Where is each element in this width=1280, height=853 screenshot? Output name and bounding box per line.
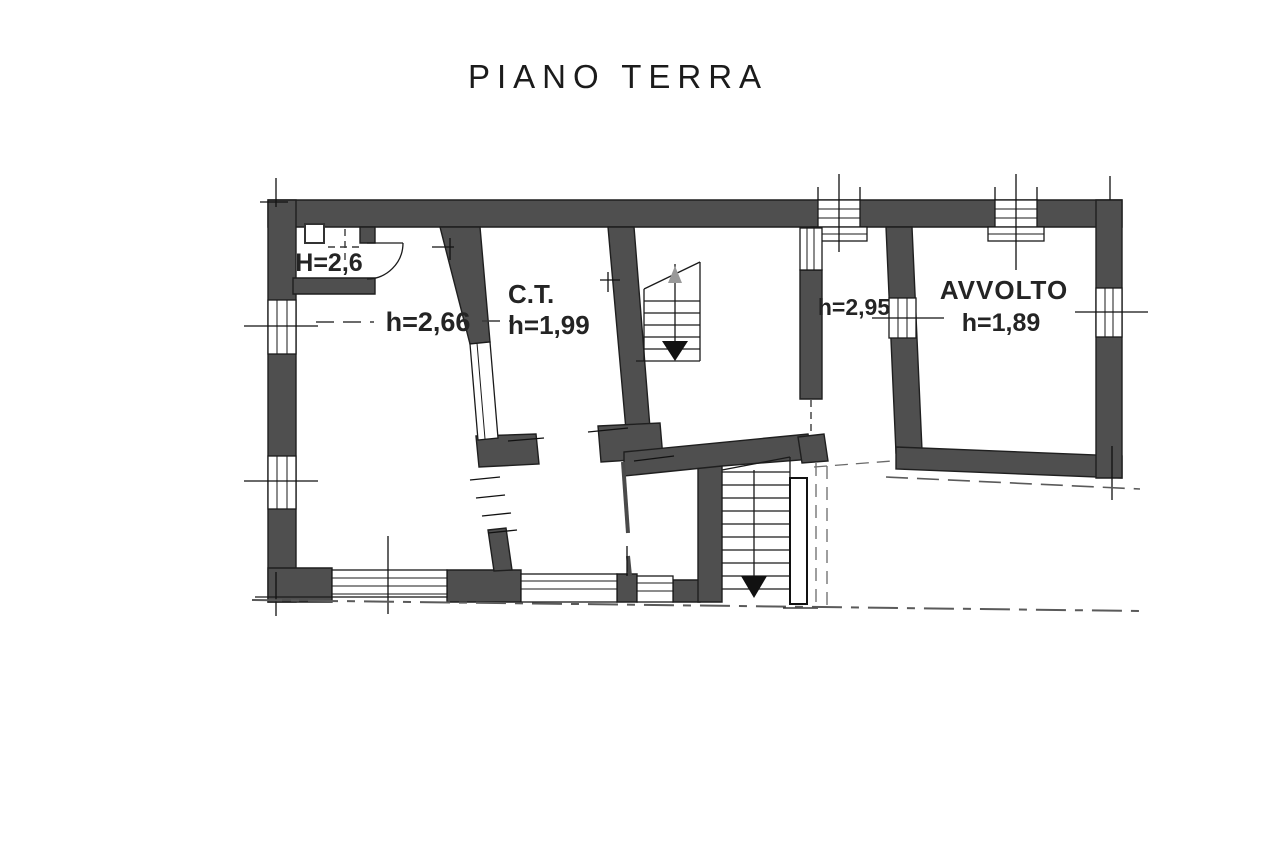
wall-bottom-small-pier (617, 574, 637, 602)
wall-left (268, 200, 296, 602)
label-cellar-name: AVVOLTO (940, 275, 1068, 305)
wall-stair-bottom-chunk (673, 580, 700, 602)
floor-plan-page: PIANO TERRA H=2,6 h=2,66 C.T. h=1,99 h=2… (0, 0, 1280, 853)
band-center-left (521, 574, 617, 602)
label-storage-height: H=2,6 (295, 249, 362, 277)
page-title: PIANO TERRA (468, 58, 768, 95)
wall-storage-stub (360, 227, 375, 243)
wall-bottom-pier (447, 570, 521, 602)
label-main-room-height: h=2,66 (386, 307, 471, 337)
label-corridor-height: h=2,95 (818, 294, 890, 320)
flue-symbol (305, 224, 324, 243)
wall-corridor-left (800, 270, 822, 399)
wall-storage-bottom (293, 278, 375, 294)
wall-corridor-left-pier (798, 434, 828, 463)
label-boiler-room-height: h=1,99 (508, 310, 590, 340)
wall-stair-west (698, 459, 722, 602)
label-cellar-height: h=1,89 (962, 309, 1041, 337)
stair-lower-railing (790, 478, 807, 604)
label-boiler-room-name: C.T. (508, 279, 554, 309)
wall-right (1096, 200, 1122, 478)
band-center-right (637, 576, 673, 602)
floor-plan-drawing: PIANO TERRA H=2,6 h=2,66 C.T. h=1,99 h=2… (0, 0, 1280, 853)
window-corridor-left-wall (800, 228, 822, 270)
wall-top (268, 200, 1122, 227)
